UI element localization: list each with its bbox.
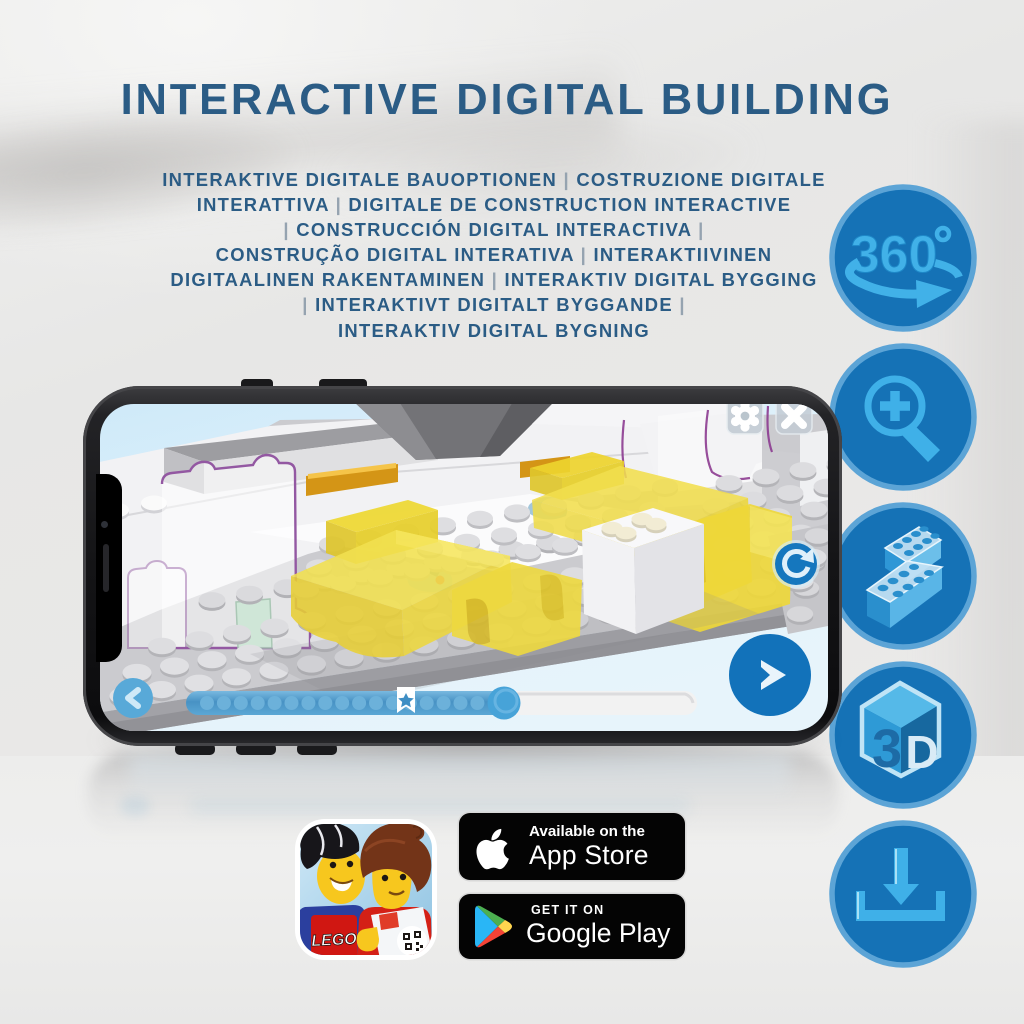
svg-text:3: 3: [872, 719, 902, 779]
svg-text:360: 360: [851, 226, 938, 284]
svg-text:D: D: [905, 726, 938, 778]
svg-text:LEGO: LEGO: [311, 931, 358, 950]
